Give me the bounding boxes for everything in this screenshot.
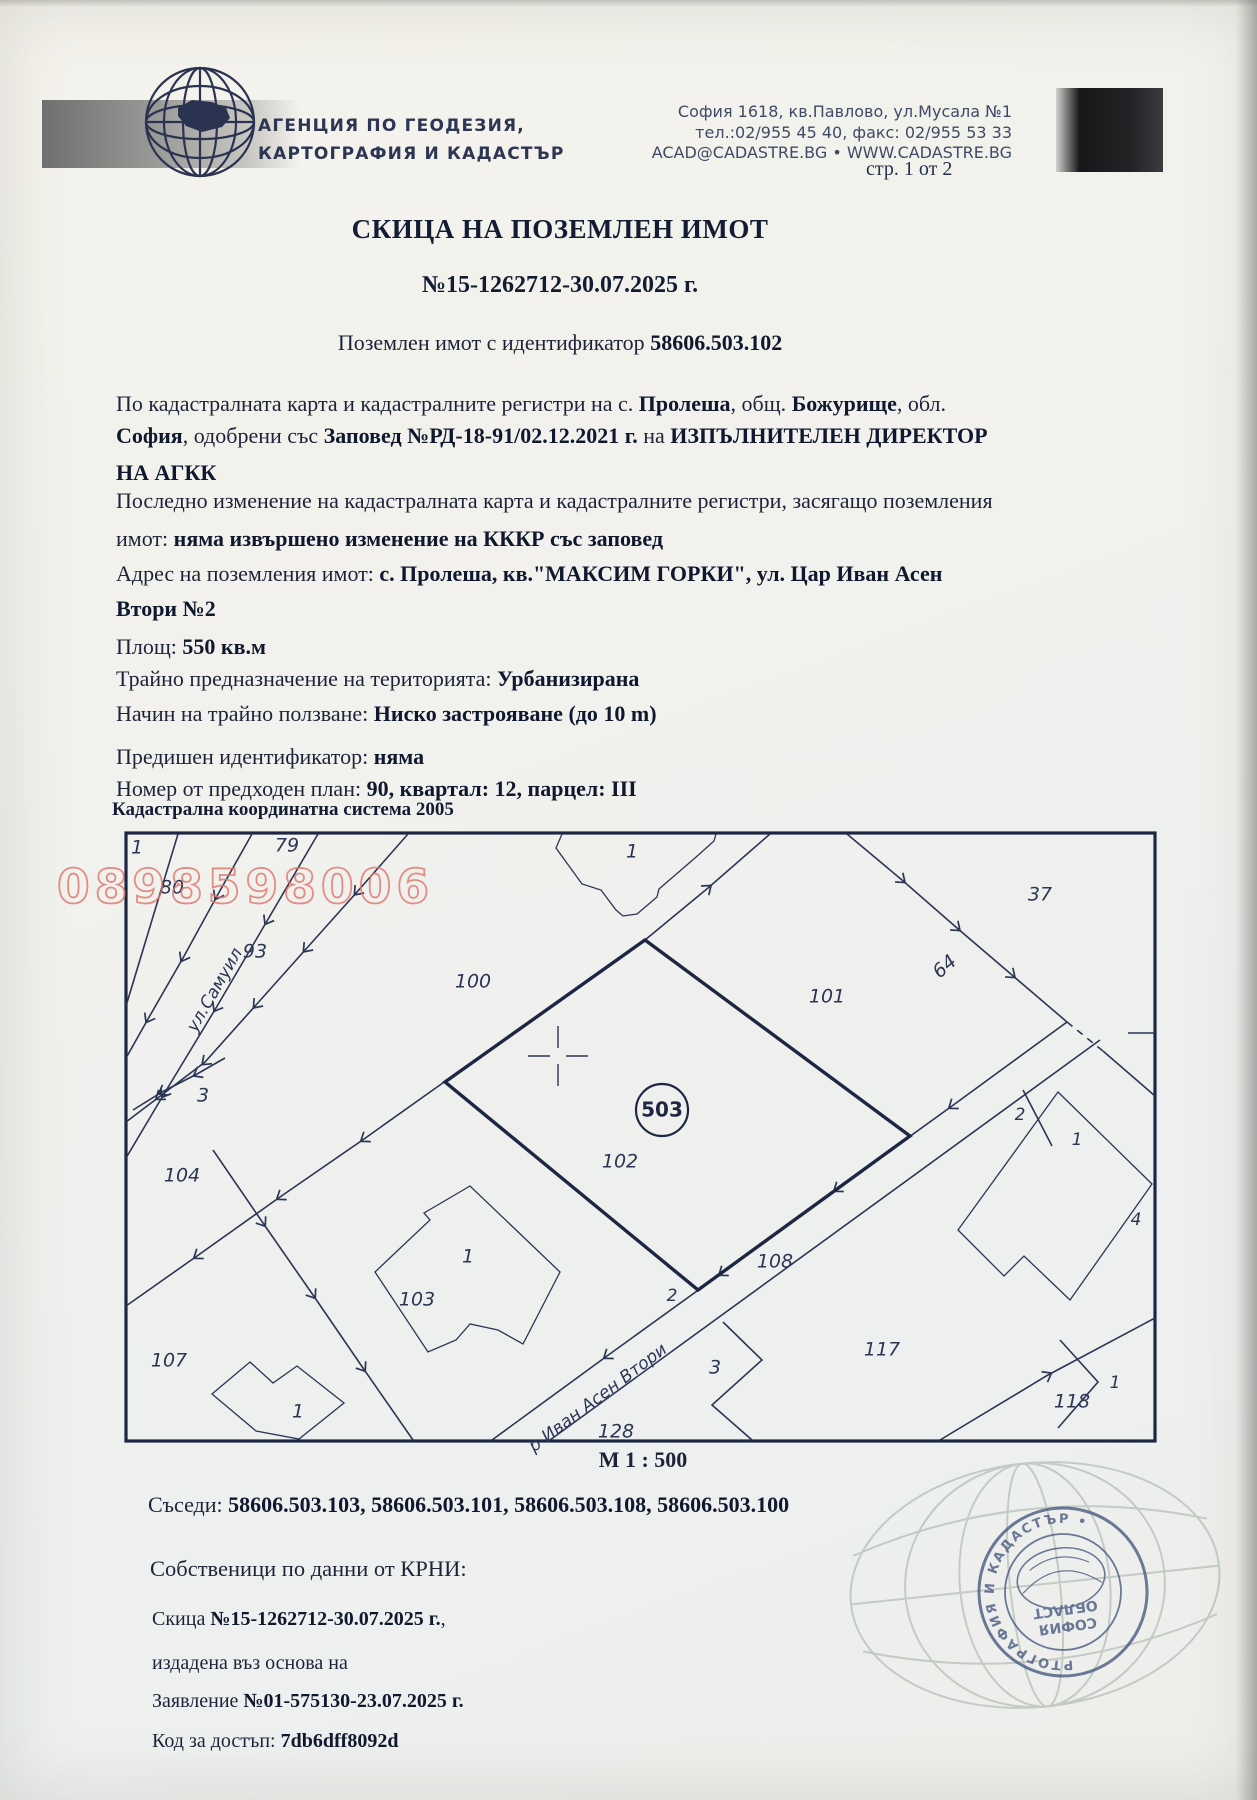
access-code-line: Код за достъп: 7db6dff8092d [152,1730,398,1753]
parcel-label: 3 [709,1357,721,1379]
cadastral-map: 503 1 79 80 93 ул.Самуил 100 1 101 64 37… [0,0,1257,1800]
building-outline [958,1092,1152,1300]
parcel-3-bottom-line [712,1322,762,1440]
parcel-118-line [1058,1340,1098,1428]
parcel-label: 108 [757,1251,793,1273]
parcel-117-line [940,1318,1155,1440]
parcel-label-102: 102 [602,1151,638,1173]
parcel-label: 1 [131,837,143,859]
building-number-label: 1 [462,1246,474,1268]
parcel-label: 4 [1131,1210,1142,1230]
parcel-line [1103,1051,1155,1096]
parcel-label: 37 [1028,884,1052,906]
building-number-label: 1 [292,1401,304,1423]
building-outline [212,1362,344,1439]
watermark-phone-number: 0898598006 [57,860,434,915]
survey-cross-icon [528,1026,588,1086]
parcel-label: 103 [399,1289,435,1311]
building-outlines [212,834,1152,1439]
parcel-3-line [133,1058,225,1110]
parcel-label: 104 [164,1165,200,1187]
parcel-2-1-separator [1023,1090,1052,1146]
parcel-label: 93 [243,941,267,963]
parcel-label: 117 [864,1339,900,1361]
parcel-boundaries [126,834,1155,1440]
parcel-64-line [847,834,1067,1022]
scanned-document-page: АГЕНЦИЯ ПО ГЕОДЕЗИЯ, КАРТОГРАФИЯ И КАДАС… [0,0,1257,1800]
map-scale-label: М 1 : 500 [543,1447,743,1473]
parcel-label: 101 [809,986,845,1008]
parcel-label: 107 [151,1350,187,1372]
parcel-label: 100 [455,971,491,993]
parcel-label: 2 [1015,1105,1026,1125]
svg-text:СЛУЖБА ПО ГЕОДЕЗИЯ, КАРТОГРАФИ: СЛУЖБА ПО ГЕОДЕЗИЯ, КАРТОГРАФИЯ И КАДАСТ… [972,1507,1110,1682]
building-outline [375,1186,560,1352]
stamp-ring-text: СЛУЖБА ПО ГЕОДЕЗИЯ, КАРТОГРАФИЯ И КАДАСТ… [972,1507,1110,1682]
point-503-label: 503 [641,1098,683,1122]
parcel-label: 64 [928,950,961,982]
parcel-label: 3 [197,1085,209,1107]
stamp-globe-background [838,1444,1231,1725]
parcel-label: 79 [275,835,299,857]
parcel-label: 118 [1054,1391,1090,1413]
street-label-samuil: ул.Самуил [182,944,247,1036]
building-number-label: 1 [626,841,638,863]
sketch-number-line: Скица №15-1262712-30.07.2025 г., [152,1608,446,1631]
parcel-104-line [126,1080,447,1306]
agency-stamp: СЛУЖБА ПО ГЕОДЕЗИЯ, КАРТОГРАФИЯ И КАДАСТ… [968,1497,1158,1687]
parcel-label: 1 [1110,1373,1121,1393]
neighbors-line: Съседи: 58606.503.103, 58606.503.101, 58… [148,1492,789,1518]
dashed-boundary [1067,1022,1103,1051]
parcel-101-line [645,834,770,940]
map-border [126,833,1155,1441]
point-number-label: 2 [667,1286,678,1306]
parcel-label: 128 [598,1421,634,1443]
building-number-label: 1 [1072,1130,1083,1150]
owners-heading: Собственици по данни от КРНИ: [150,1556,467,1582]
parcel-107-line [213,1150,413,1440]
application-number-line: Заявление №01-575130-23.07.2025 г. [152,1690,464,1713]
issued-basis-line: издадена въз основа на [152,1652,348,1675]
